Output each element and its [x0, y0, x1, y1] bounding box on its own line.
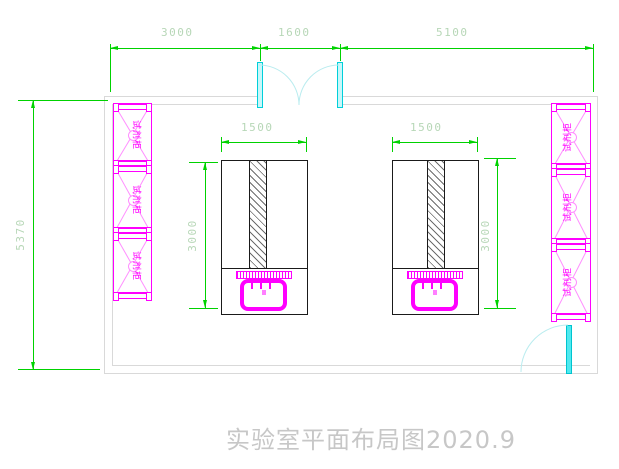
- extension-line: [189, 162, 218, 163]
- arrowhead: [110, 46, 118, 50]
- cabinet-label: 试剂柜: [561, 191, 574, 221]
- arrowhead: [260, 46, 268, 50]
- dimension-line-bench-right-width: [392, 142, 477, 143]
- extension-line: [593, 44, 594, 92]
- dimension-line-left: [33, 100, 34, 370]
- cabinet-bar: [554, 103, 588, 110]
- reagent-cabinet: 试剂柜: [551, 103, 591, 170]
- wall-right-outer: [597, 96, 598, 374]
- arrowhead: [585, 46, 593, 50]
- extension-line: [18, 100, 108, 101]
- wall-top-outer-left: [104, 96, 260, 97]
- arrowhead: [252, 46, 260, 50]
- wall-top-outer-right: [340, 96, 597, 97]
- cabinet-label: 试剂柜: [561, 266, 574, 296]
- dim-top-1600: 1600: [278, 26, 311, 39]
- sink: [240, 279, 287, 311]
- sink-drain: [262, 290, 266, 295]
- dimension-line-bench-left-width: [221, 142, 306, 143]
- reagent-cabinet: 试剂柜: [113, 103, 152, 167]
- extension-line: [110, 44, 111, 92]
- arrowhead: [340, 46, 348, 50]
- extension-line: [484, 308, 516, 309]
- door-swing-arcs: [255, 60, 347, 108]
- cabinet-bar: [554, 313, 588, 320]
- arrowhead: [495, 300, 499, 308]
- bench-divider: [222, 268, 307, 269]
- dim-top-3000: 3000: [161, 26, 194, 39]
- arrowhead: [31, 100, 35, 108]
- cad-drawing-canvas: 3000 1600 5100 5370 试剂柜 试剂柜 试剂柜: [0, 0, 619, 469]
- arrowhead: [332, 46, 340, 50]
- sink-ledge: [407, 271, 463, 279]
- arrowhead: [495, 158, 499, 166]
- dim-top-5100: 5100: [436, 26, 469, 39]
- drawing-title: 实验室平面布局图2020.9: [226, 420, 516, 455]
- arrowhead: [203, 300, 207, 308]
- sink: [411, 279, 458, 311]
- dim-left-5370: 5370: [14, 218, 27, 251]
- bench-service-column: [427, 161, 445, 268]
- extension-line: [260, 44, 261, 61]
- reagent-cabinet: 试剂柜: [113, 232, 152, 299]
- cabinet-label: 试剂柜: [130, 184, 143, 214]
- cabinet-bar: [116, 103, 149, 110]
- reagent-cabinet: 试剂柜: [551, 243, 591, 320]
- sink-taps: [422, 283, 448, 289]
- sink-drain: [433, 290, 437, 295]
- dim-bench-right-3000: 3000: [479, 219, 492, 252]
- cabinet-bar: [554, 168, 588, 175]
- arrowhead: [203, 162, 207, 170]
- cabinet-bar: [116, 232, 149, 239]
- sink-ledge: [236, 271, 292, 279]
- sink-taps: [251, 283, 277, 289]
- extension-line: [306, 137, 307, 152]
- bench-service-column: [249, 161, 267, 268]
- dim-bench-left-1500: 1500: [241, 121, 274, 134]
- cabinet-bar: [116, 292, 149, 299]
- side-door-swing-arc: [518, 320, 574, 376]
- reagent-cabinet: 试剂柜: [113, 165, 152, 234]
- cabinet-bar: [554, 243, 588, 250]
- arrowhead: [298, 140, 306, 144]
- cabinet-label: 试剂柜: [130, 250, 143, 280]
- dim-bench-left-3000: 3000: [186, 219, 199, 252]
- bench-divider: [393, 268, 478, 269]
- cabinet-bar: [116, 165, 149, 172]
- dimension-line-top: [110, 48, 593, 49]
- arrowhead: [221, 140, 229, 144]
- extension-line: [340, 44, 341, 61]
- wall-left-outer: [104, 96, 105, 374]
- dimension-line-bench-right-length: [497, 158, 498, 308]
- arrowhead: [392, 140, 400, 144]
- cabinet-label: 试剂柜: [130, 120, 143, 150]
- dimension-line-bench-left-length: [205, 162, 206, 308]
- cabinet-label: 试剂柜: [561, 121, 574, 151]
- extension-line: [484, 158, 516, 159]
- dim-bench-right-1500: 1500: [410, 121, 443, 134]
- extension-line: [392, 137, 393, 152]
- extension-line: [477, 137, 478, 152]
- extension-line: [189, 308, 218, 309]
- arrowhead: [469, 140, 477, 144]
- extension-line: [18, 369, 100, 370]
- reagent-cabinet: 试剂柜: [551, 168, 591, 245]
- extension-line: [221, 137, 222, 152]
